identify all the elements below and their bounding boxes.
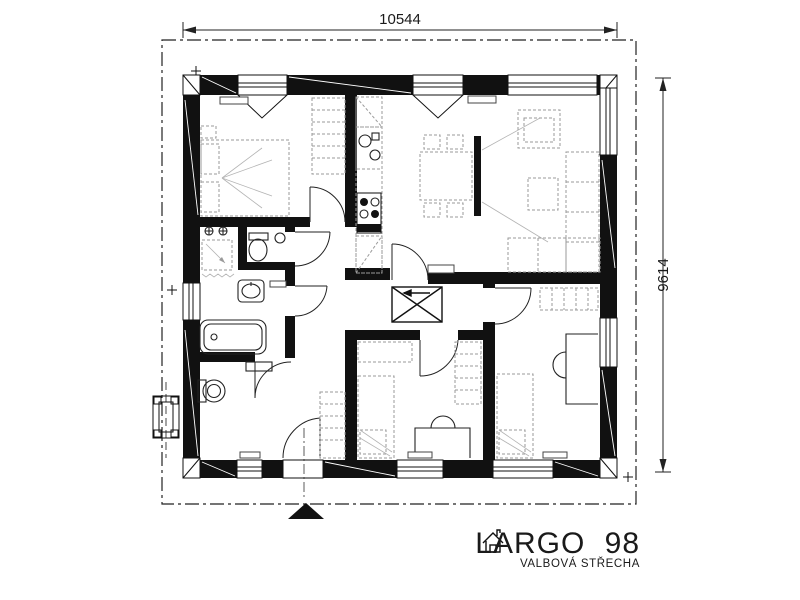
plan-title: LARGO 98 [475,527,640,560]
window-icon [237,460,262,478]
radiator-icon [408,452,432,458]
window-icon [508,75,597,95]
window-icon [600,318,617,367]
bed-icon [358,376,394,458]
kitchen-sink-icon [359,133,380,160]
dimension-right: 9614 [655,78,672,472]
floor-plan-drawing: 10544 9614 [0,0,800,600]
wardrobe-icon [455,342,481,404]
window-icon [397,460,443,478]
dimension-top: 10544 [183,11,617,38]
towel-radiator-icon [205,227,227,235]
stove-icon [357,193,381,233]
coffee-table-icon [528,178,558,210]
radiator-icon [468,96,496,103]
plan-subtitle: VALBOVÁ STŘECHA [520,557,640,570]
door-icon [495,288,531,324]
dimension-top-value: 10544 [379,11,421,28]
door-icon [255,362,291,398]
double-bed-icon [201,126,289,216]
radiator-icon [220,97,248,104]
window-icon [183,283,200,320]
title-block: LARGO 98 VALBOVÁ STŘECHA [475,527,640,570]
radiator-icon [428,265,454,273]
floor-plan-sheet: 10544 9614 [0,0,800,600]
bed-icon [497,374,533,458]
downspout-symbol [153,382,179,458]
door-icon [310,187,345,222]
wardrobe-icon [540,288,598,310]
closet-icon [320,392,345,458]
entrance-marker-icon [288,503,324,519]
window-icon [413,75,463,118]
shower-icon [202,240,234,277]
bathtub-icon [200,320,266,354]
corner-sofa-icon [508,152,600,272]
shelf-icon [358,342,412,362]
room-living [420,96,600,272]
entrance-door [283,418,323,500]
radiator-icon [543,452,567,458]
door-icon [420,340,458,376]
room-bedroom-3 [497,288,598,458]
toilet-icon [198,380,225,402]
toilet-icon [249,233,268,261]
radiator-icon [240,452,260,458]
kitchen-counter [356,97,382,273]
desk-icon [553,334,598,404]
room-entrance-hall [198,380,345,458]
door-icon [392,244,428,280]
door-icon [295,232,330,266]
shelf-icon [270,281,286,287]
tv-panel-icon [474,136,481,216]
door-icon [295,286,327,316]
dimension-right-value: 9614 [655,258,672,291]
window-icon [493,460,553,478]
window-icon [600,88,617,155]
corner-basin-icon [275,233,285,243]
room-bedroom-1 [201,97,345,216]
armchair-icon [518,110,560,148]
dining-table-icon [420,135,472,217]
washbasin-icon [238,280,264,302]
wardrobe-icon [312,98,345,174]
attic-hatch-icon [392,287,442,322]
